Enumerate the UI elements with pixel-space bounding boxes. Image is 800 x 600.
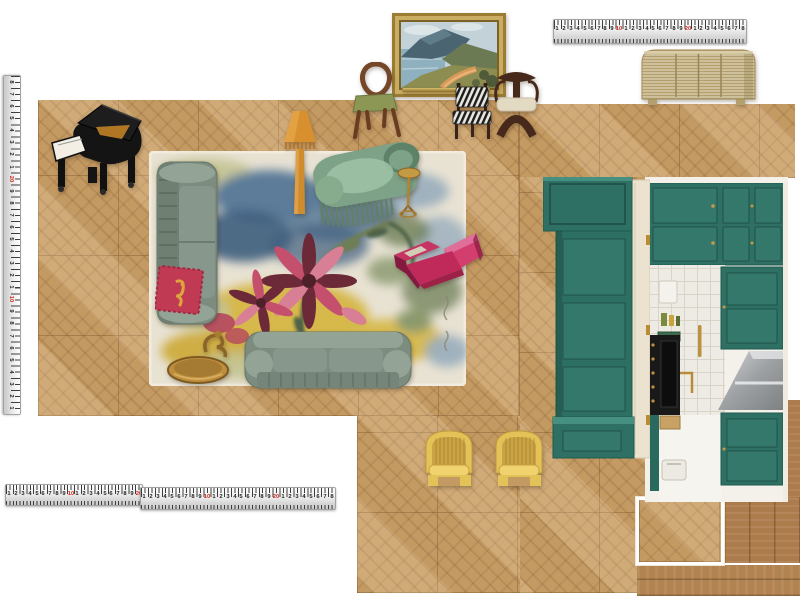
lamp-fringe	[286, 142, 314, 149]
ruler-number: 3	[226, 494, 229, 500]
ruler-number: 7	[597, 26, 600, 32]
ruler-number: 9	[130, 491, 133, 497]
ruler-number: 5	[8, 358, 14, 361]
rattan-sideboard[interactable]	[638, 47, 759, 107]
ruler-number: 3	[8, 382, 14, 385]
ruler-number: 5	[652, 26, 655, 32]
bentwood-chair[interactable]	[351, 62, 401, 139]
ruler-number: 7	[666, 26, 669, 32]
ruler-number: 6	[8, 225, 14, 228]
ruler-number: 1	[8, 165, 14, 168]
moodboard-canvas: 123456789101234567892012345678 876543212…	[0, 0, 800, 600]
ruler-number: 5	[240, 494, 243, 500]
ruler-number: 3	[8, 141, 14, 144]
floor-parquet-top-band[interactable]	[519, 104, 795, 178]
rug-flower-main	[261, 233, 357, 329]
ruler-number: 4	[8, 249, 14, 252]
ruler-number: 4	[233, 494, 236, 500]
ruler-number: 7	[323, 494, 326, 500]
ruler-number: 6	[110, 491, 113, 497]
floor-planks-bottom[interactable]	[637, 565, 800, 596]
ruler-number: 5	[35, 491, 38, 497]
ruler-number: 2	[150, 494, 153, 500]
ruler-number: 10	[8, 296, 14, 302]
ruler-number: 2	[288, 494, 291, 500]
martini-side-table[interactable]	[395, 165, 423, 219]
measuring-tape-bottom-left[interactable]: 1234567891012345678920	[5, 484, 143, 506]
sculpt-chair-cushion	[497, 98, 536, 111]
ruler-number: 1	[8, 286, 14, 289]
ruler-ticks-bottom	[141, 505, 335, 509]
ruler-number: 2	[83, 491, 86, 497]
ruler-number: 4	[302, 494, 305, 500]
ruler-number: 8	[604, 26, 607, 32]
ruler-number: 4	[8, 370, 14, 373]
ruler-number: 9	[62, 491, 65, 497]
ruler-number: 8	[261, 494, 264, 500]
ruler-number: 3	[21, 491, 24, 497]
ruler-number: 8	[191, 494, 194, 500]
ruler-number: 6	[42, 491, 45, 497]
ruler-number: 8	[8, 201, 14, 204]
ruler-number: 5	[171, 494, 174, 500]
ruler-number: 1	[693, 26, 696, 32]
ruler-number: 6	[247, 494, 250, 500]
ruler-number: 7	[8, 334, 14, 337]
yellow-tub-chair-2[interactable]	[492, 425, 547, 487]
measuring-tape-left-wrap: 876543212098765432110987654321	[5, 75, 21, 413]
floor-planks-corner[interactable]	[724, 497, 800, 563]
ruler-number: 3	[89, 491, 92, 497]
ruler-number: 1	[556, 26, 559, 32]
ruler-number: 10	[67, 491, 73, 497]
ruler-number: 20	[8, 175, 14, 181]
ruler-number: 2	[8, 394, 14, 397]
measuring-tape-left[interactable]: 876543212098765432110987654321	[3, 75, 21, 415]
kitchen-switch-box	[659, 281, 677, 303]
ruler-number: 10	[204, 494, 210, 500]
sculptural-chair[interactable]	[491, 68, 542, 138]
ruler-number: 5	[309, 494, 312, 500]
ruler-number: 6	[659, 26, 662, 32]
ruler-number: 7	[8, 213, 14, 216]
ruler-number: 2	[8, 274, 14, 277]
ruler-number: 9	[268, 494, 271, 500]
sculpt-chair-arch-base	[500, 119, 533, 136]
bentwood-seat	[353, 94, 397, 112]
ruler-number: 8	[123, 491, 126, 497]
ruler-number: 3	[157, 494, 160, 500]
ruler-ticks-bottom	[554, 39, 746, 43]
ruler-number: 9	[679, 26, 682, 32]
ruler-number: 7	[184, 494, 187, 500]
ruler-number: 1	[76, 491, 79, 497]
ruler-number: 4	[714, 26, 717, 32]
bentwood-loop-back	[363, 64, 390, 95]
ruler-number: 3	[570, 26, 573, 32]
ruler-number: 1	[8, 491, 11, 497]
ruler-number: 5	[720, 26, 723, 32]
ruler-number: 8	[672, 26, 675, 32]
green-joinery-unit[interactable]	[543, 177, 650, 460]
ruler-number: 1	[8, 406, 14, 409]
ruler-number: 6	[8, 346, 14, 349]
ruler-number: 1	[281, 494, 284, 500]
kitchen-thermostat	[660, 416, 680, 429]
ruler-number: 1	[624, 26, 627, 32]
ruler-number: 7	[49, 491, 52, 497]
gold-side-table[interactable]	[166, 324, 230, 386]
sofa-bottom[interactable]	[243, 330, 413, 393]
kitchen-toaster	[662, 460, 686, 480]
martini-top	[398, 168, 420, 178]
ruler-number: 3	[295, 494, 298, 500]
ruler-number: 4	[28, 491, 31, 497]
ruler-number: 2	[631, 26, 634, 32]
ruler-number: 4	[96, 491, 99, 497]
ruler-number: 8	[8, 322, 14, 325]
ruler-number: 2	[563, 26, 566, 32]
kitchen-brass-pull	[698, 325, 702, 357]
table-sculpture-base	[205, 335, 225, 357]
yellow-chair-cushion	[499, 465, 539, 476]
ruler-number: 20	[684, 26, 690, 32]
ruler-number: 9	[198, 494, 201, 500]
ruler-number: 4	[8, 129, 14, 132]
ruler-number: 10	[616, 26, 622, 32]
sofa-left-arm-top	[159, 163, 215, 183]
measuring-tape-top[interactable]: 123456789101234567892012345678	[553, 19, 747, 44]
ruler-number: 3	[8, 261, 14, 264]
zebra-legs	[455, 124, 490, 139]
ruler-number: 2	[700, 26, 703, 32]
ruler-number: 6	[590, 26, 593, 32]
ruler-number: 4	[576, 26, 579, 32]
ruler-number: 4	[164, 494, 167, 500]
ruler-number: 7	[254, 494, 257, 500]
ruler-number: 9	[8, 189, 14, 192]
ruler-number: 3	[638, 26, 641, 32]
ruler-ticks-major	[11, 76, 20, 414]
ruler-number: 5	[8, 117, 14, 120]
ruler-number: 9	[611, 26, 614, 32]
ruler-number: 7	[117, 491, 120, 497]
ruler-ticks-bottom	[6, 501, 142, 505]
zebra-back-cushion	[456, 87, 488, 107]
ruler-number: 5	[103, 491, 106, 497]
yellow-tub-chair-1[interactable]	[422, 425, 477, 487]
ruler-number: 8	[55, 491, 58, 497]
measuring-tape-bottom-right[interactable]: 123456789101234567892012345678	[140, 487, 336, 510]
ruler-number: 6	[727, 26, 730, 32]
sofa-left[interactable]	[155, 160, 219, 328]
piano-pedal-lyre	[88, 167, 97, 183]
ruler-number: 4	[645, 26, 648, 32]
ruler-number: 5	[8, 237, 14, 240]
ruler-number: 7	[8, 92, 14, 95]
sofa-bottom-back	[253, 332, 403, 348]
grand-piano[interactable]	[44, 101, 146, 196]
zebra-seat	[453, 111, 491, 124]
ruler-number: 2	[219, 494, 222, 500]
ruler-number: 2	[15, 491, 18, 497]
ruler-number: 2	[8, 153, 14, 156]
yellow-chair-cushion	[429, 465, 469, 476]
ruler-number: 6	[177, 494, 180, 500]
ruler-number: 20	[273, 494, 279, 500]
ruler-number: 1	[212, 494, 215, 500]
ruler-number: 8	[330, 494, 333, 500]
ruler-number: 9	[8, 310, 14, 313]
ruler-number: 8	[8, 80, 14, 83]
parquet-sample-square[interactable]	[636, 497, 724, 565]
ruler-number: 6	[316, 494, 319, 500]
ruler-number: 8	[741, 26, 744, 32]
joinery-top-band	[543, 177, 632, 231]
kitchen-photo[interactable]	[645, 177, 788, 502]
red-cushion[interactable]	[155, 266, 203, 314]
floor-lamp[interactable]	[280, 108, 320, 216]
ruler-number: 1	[143, 494, 146, 500]
ruler-number: 6	[8, 105, 14, 108]
pink-lounge-chair[interactable]	[388, 223, 484, 289]
ruler-number: 3	[707, 26, 710, 32]
zebra-chair[interactable]	[450, 83, 497, 140]
ruler-number: 5	[583, 26, 586, 32]
bentwood-legs	[355, 110, 399, 137]
ruler-number: 7	[734, 26, 737, 32]
